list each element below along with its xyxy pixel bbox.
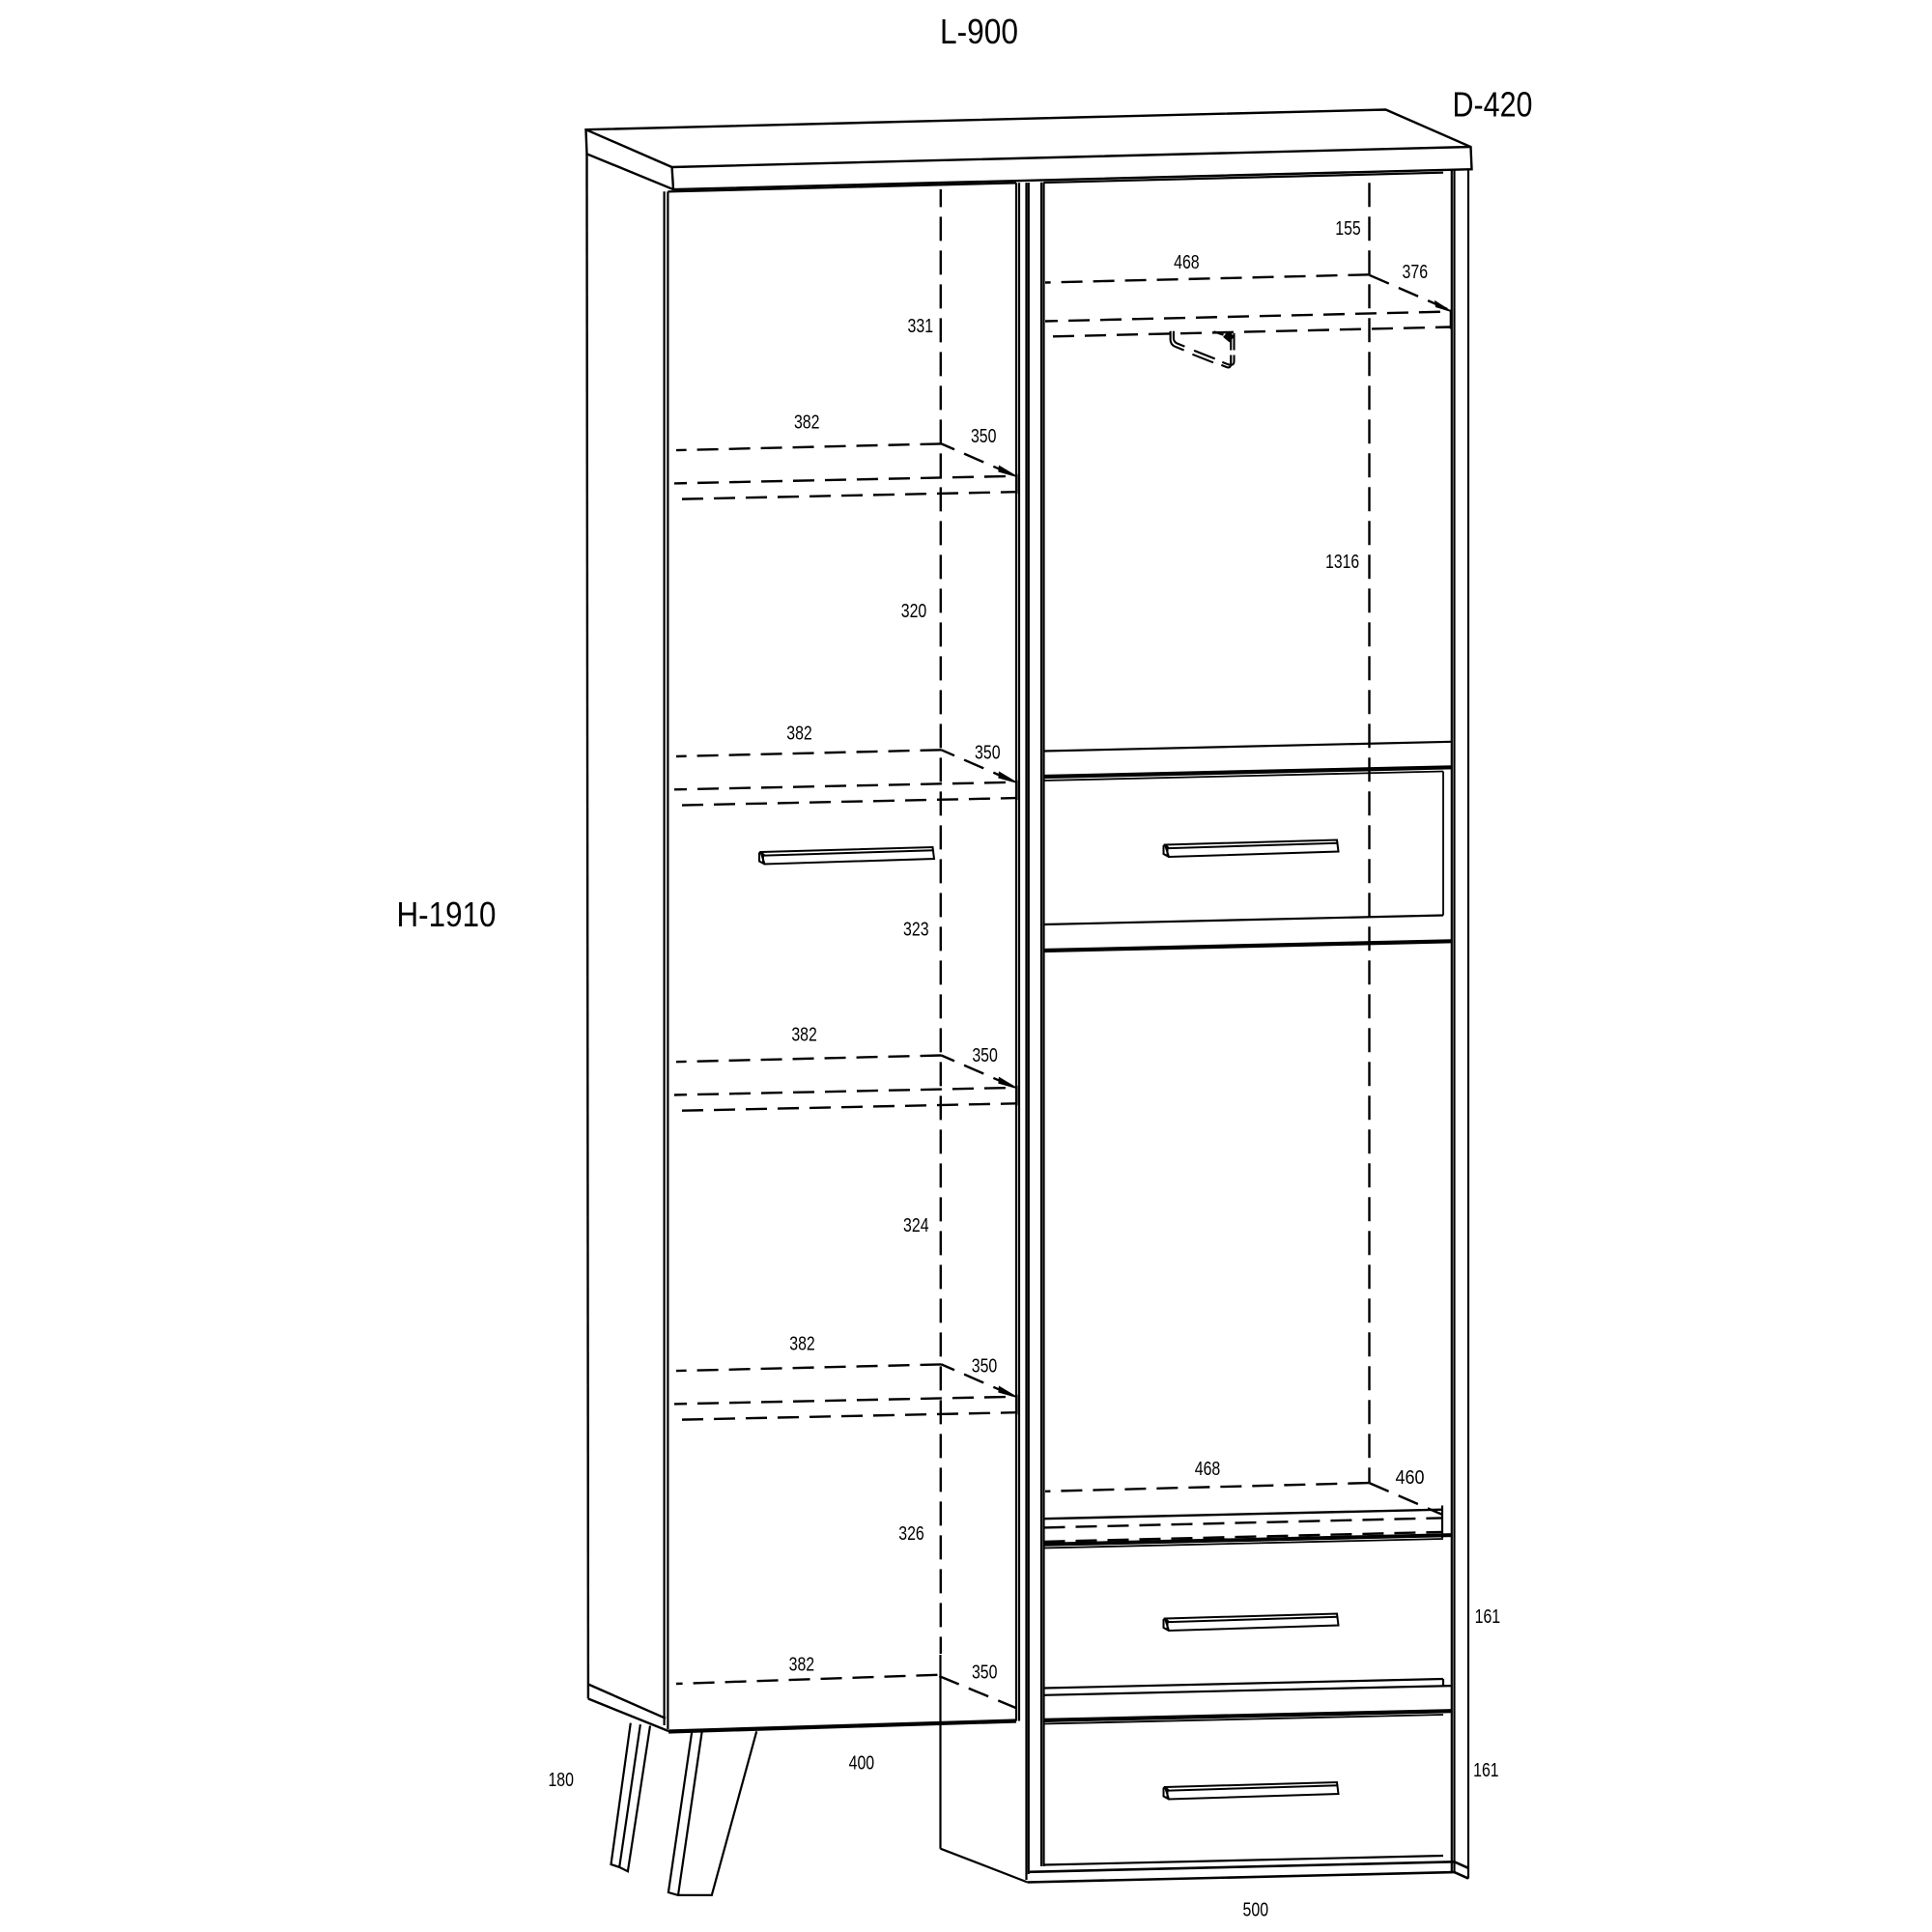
svg-text:460: 460	[1396, 1467, 1425, 1489]
svg-text:350: 350	[971, 426, 997, 447]
svg-text:L-900: L-900	[940, 12, 1018, 51]
svg-text:326: 326	[898, 1523, 924, 1545]
svg-text:376: 376	[1403, 262, 1429, 283]
svg-text:155: 155	[1335, 218, 1361, 240]
svg-text:350: 350	[975, 743, 1001, 764]
svg-text:320: 320	[901, 601, 927, 622]
svg-text:331: 331	[908, 316, 934, 337]
svg-text:350: 350	[972, 1356, 998, 1378]
svg-text:382: 382	[789, 1655, 815, 1676]
svg-text:323: 323	[903, 920, 929, 941]
svg-text:500: 500	[1243, 1900, 1269, 1921]
svg-text:382: 382	[794, 412, 820, 433]
svg-text:D-420: D-420	[1453, 85, 1533, 125]
svg-text:382: 382	[789, 1334, 815, 1355]
svg-text:350: 350	[972, 1045, 998, 1066]
svg-text:180: 180	[548, 1770, 574, 1791]
svg-text:400: 400	[849, 1752, 875, 1774]
svg-text:161: 161	[1473, 1760, 1499, 1781]
svg-text:468: 468	[1195, 1459, 1221, 1480]
svg-text:382: 382	[791, 1025, 817, 1046]
svg-text:350: 350	[972, 1662, 998, 1684]
svg-text:468: 468	[1174, 252, 1200, 273]
svg-text:H-1910: H-1910	[397, 895, 497, 934]
svg-text:1316: 1316	[1325, 552, 1359, 573]
svg-text:161: 161	[1475, 1606, 1501, 1628]
svg-text:382: 382	[786, 724, 812, 745]
svg-text:324: 324	[903, 1215, 929, 1236]
